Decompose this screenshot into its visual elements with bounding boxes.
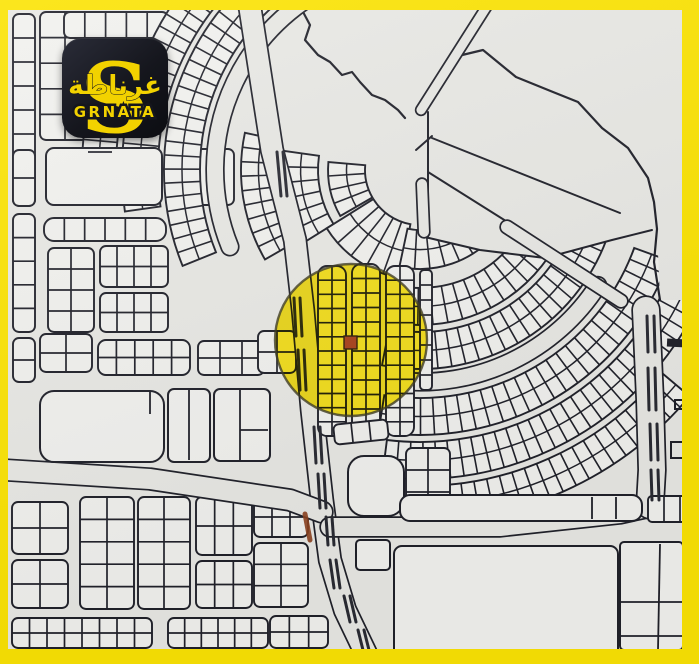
plot-block <box>196 561 252 608</box>
road-dash <box>326 517 328 545</box>
target-plot-marker <box>344 336 357 349</box>
plot-block <box>64 12 168 38</box>
road-dash <box>320 427 322 463</box>
road-dash <box>332 517 334 545</box>
plot-block <box>12 560 68 608</box>
plot-block <box>254 543 308 607</box>
parcel <box>46 148 162 205</box>
road-dash <box>314 427 316 463</box>
map-screenshot: S غرناطة GRNATA <box>0 0 699 664</box>
plot-block <box>48 248 94 332</box>
plot-block <box>12 618 152 648</box>
plot-block <box>12 502 68 554</box>
parcel <box>620 542 683 650</box>
parcel <box>356 540 390 570</box>
frame-border <box>682 0 699 664</box>
road-dash <box>318 474 320 508</box>
parcel <box>214 389 270 461</box>
road-dash <box>650 424 651 460</box>
road-dash <box>658 470 659 500</box>
grnata-logo: S غرناطة GRNATA <box>62 38 168 138</box>
road-dash <box>657 424 658 460</box>
road-dash <box>654 316 655 352</box>
plot-block <box>168 618 268 648</box>
plot-block <box>44 218 166 241</box>
plot-block <box>98 340 190 375</box>
frame-border <box>0 0 8 664</box>
plot-block <box>198 341 264 375</box>
parcel <box>348 456 404 516</box>
plot-block <box>80 497 134 609</box>
plot-block <box>13 150 35 206</box>
plot-block <box>100 246 168 287</box>
frame-border <box>0 649 699 664</box>
road <box>422 184 424 232</box>
road-dash <box>647 316 648 352</box>
logo-arabic-text: غرناطة <box>68 71 162 101</box>
road-dash <box>648 368 649 410</box>
road-dash <box>655 368 656 410</box>
plot-block <box>40 334 92 372</box>
plot-block <box>196 497 252 555</box>
logo-latin-text: GRNATA <box>74 103 157 121</box>
frame-border <box>0 0 699 10</box>
grnata-logo-art: S غرناطة GRNATA <box>62 38 168 138</box>
parcel <box>394 546 618 658</box>
plot-block <box>100 293 168 332</box>
parcel <box>400 495 642 521</box>
plot-block <box>13 214 35 332</box>
parcel <box>40 391 164 462</box>
plot-block <box>13 338 35 382</box>
road-dash <box>324 474 326 508</box>
road-dash <box>651 470 652 500</box>
plot-block <box>138 497 190 609</box>
plot-block <box>270 616 328 648</box>
plot-block <box>333 419 389 445</box>
